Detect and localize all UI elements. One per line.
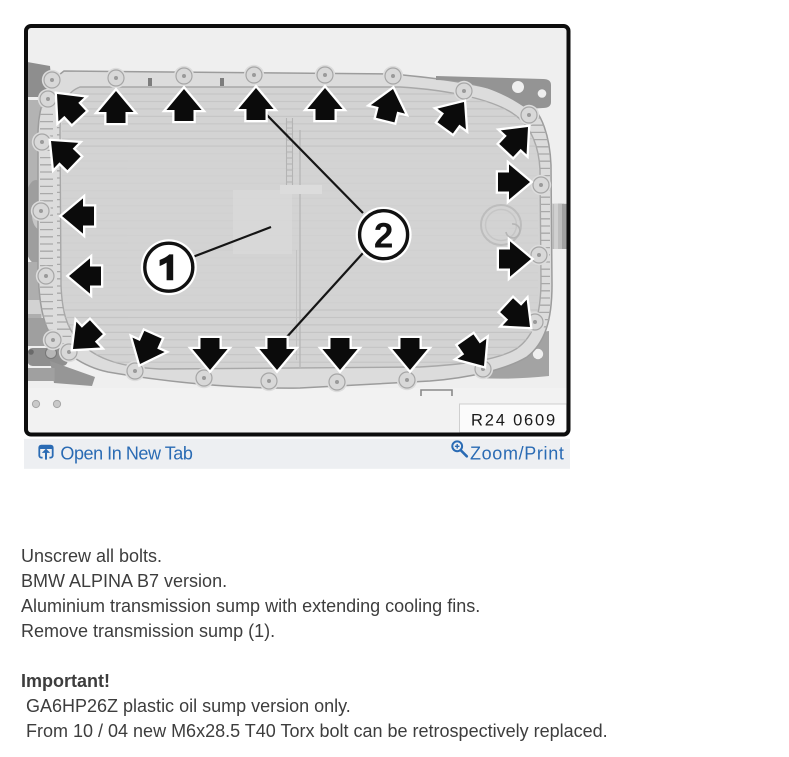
svg-text:Open In New Tab: Open In New Tab	[60, 443, 192, 463]
svg-text:2: 2	[374, 217, 393, 256]
svg-text:R24 0609: R24 0609	[471, 412, 557, 430]
svg-text:Zoom/Print: Zoom/Print	[470, 443, 565, 463]
